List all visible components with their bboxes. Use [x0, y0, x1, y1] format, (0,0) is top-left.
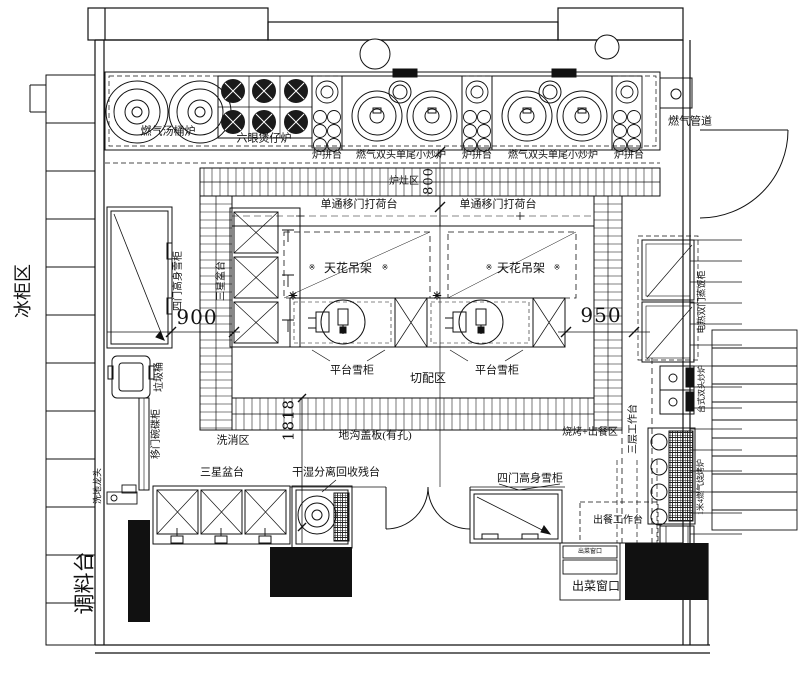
floor-faucet [107, 485, 137, 504]
label-double-wok: 台式双头炒炉 [698, 365, 706, 413]
label-waste-table: 干湿分离回收残台 [292, 468, 380, 479]
label-three-star-sink-bottom: 三星盆台 [200, 468, 244, 479]
ref-mark-4: ※ [554, 264, 561, 272]
kitchen-floor-plan: 燃气汤桶炉 六眼煲仔炉 炉拼台 燃气双头单尾小炒炉 炉拼台 燃气双头单尾小炒炉 … [0, 0, 800, 675]
label-pass-window-small: 出菜窗口 [578, 549, 602, 555]
central-block [200, 196, 622, 430]
label-cutting-zone: 切配区 [410, 372, 446, 384]
waste-separation-machine [292, 480, 352, 548]
bbq-grill [648, 428, 695, 546]
label-pass-window: 出菜窗口 [572, 580, 620, 592]
label-rice-steamer: 电热双门蒸饭柜 [698, 270, 707, 333]
label-ceiling-rack-2: 天花吊架 [497, 262, 545, 274]
rice-steam-cabinets [638, 236, 698, 362]
label-trash-bin: 垃圾桶 [155, 362, 165, 392]
entry-door-right [700, 130, 788, 218]
label-wok-stove-2: 燃气双头单尾小炒炉 [508, 151, 598, 161]
label-ceiling-rack-1: 天花吊架 [324, 262, 372, 274]
label-washing-zone: 洗消区 [217, 436, 250, 447]
label-three-star-sink-middle: 三星盆台 [217, 261, 227, 301]
double-door-bottom [290, 487, 565, 529]
three-star-sink-bottom [153, 486, 290, 544]
plan-linework [0, 0, 800, 675]
label-stove-side-table-1: 炉拼台 [312, 151, 342, 161]
label-stove-side-table-3: 炉拼台 [614, 151, 644, 161]
four-door-fridge-bottom [470, 484, 562, 543]
label-bbq-zone: 烧烤+出餐区 [562, 428, 618, 438]
stairs-right [712, 330, 797, 530]
label-freezer-zone: 冰柜区 [14, 264, 32, 318]
ref-mark-1: ※ [309, 264, 316, 272]
label-platform-fridge-2: 平台雪柜 [475, 366, 519, 377]
ref-mark-2: ※ [382, 264, 389, 272]
dim-right-aisle-950: 950 [580, 305, 621, 325]
label-floor-faucet: 洗地龙头 [94, 468, 103, 504]
gas-meter-box [660, 78, 692, 108]
label-platform-fridge-1: 平台雪柜 [330, 366, 374, 377]
ref-mark-3: ※ [486, 264, 493, 272]
label-four-door-fridge-left: 四门高身雪柜 [174, 251, 184, 311]
pass-counter-band [232, 196, 594, 226]
label-stove-zone: 炉灶区 [389, 177, 419, 187]
dim-left-aisle-900: 900 [176, 307, 217, 327]
label-seasoning-table: 调料台 [75, 552, 96, 615]
dim-cook-aisle-800: 800 [423, 167, 436, 195]
tabletop-wok-units [660, 366, 694, 414]
label-six-eye-stove: 六眼煲仔炉 [237, 134, 292, 145]
label-pass-counter-2: 单通移门打荷台 [460, 200, 537, 211]
six-eye-stove [218, 76, 312, 138]
platform-fridge-tables [290, 298, 565, 361]
four-door-fridge-left [107, 207, 172, 348]
label-stove-side-table-2: 炉拼台 [462, 151, 492, 161]
label-serving-table: 出餐工作台 [593, 516, 643, 526]
trash-bin [108, 356, 154, 398]
structural-columns [128, 520, 708, 622]
label-wok-stove-1: 燃气双头单尾小炒炉 [356, 151, 446, 161]
label-three-layer-table: 三层工作台 [629, 404, 639, 454]
label-dish-cabinet: 移门碗碟柜 [152, 409, 162, 459]
star-mark-2: ✳ [432, 292, 441, 303]
star-mark-1: ✳ [288, 292, 297, 303]
stove-side-columns [312, 76, 642, 152]
label-bbq-grill: 1米4燃气烧烤炉 [697, 459, 705, 515]
label-trench-cover: 地沟盖板(有孔) [338, 431, 411, 442]
label-soup-stove: 燃气汤桶炉 [141, 127, 196, 138]
wok-stove-2 [492, 69, 612, 150]
label-gas-pipe: 燃气管道 [668, 117, 712, 128]
label-pass-counter-1: 单通移门打荷台 [321, 200, 398, 211]
label-four-door-fridge-bottom: 四门高身雪柜 [497, 474, 563, 485]
wok-stove-1 [342, 69, 462, 150]
dim-wash-aisle-1818: 1818 [282, 399, 297, 441]
dish-cabinet [139, 398, 149, 490]
